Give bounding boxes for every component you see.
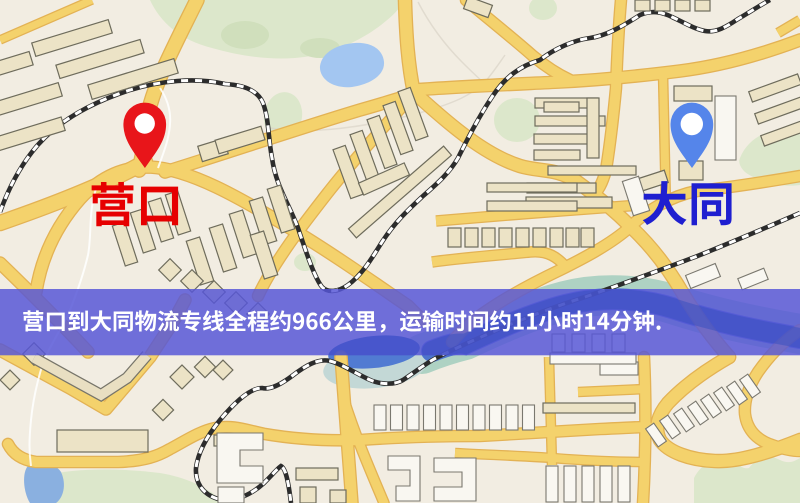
svg-text:营口: 营口 <box>89 167 183 236</box>
svg-text:营口到大同物流专线全程约966公里，运输时间约11小时14分: 营口到大同物流专线全程约966公里，运输时间约11小时14分钟. <box>22 305 662 337</box>
svg-text:大同: 大同 <box>641 166 735 235</box>
